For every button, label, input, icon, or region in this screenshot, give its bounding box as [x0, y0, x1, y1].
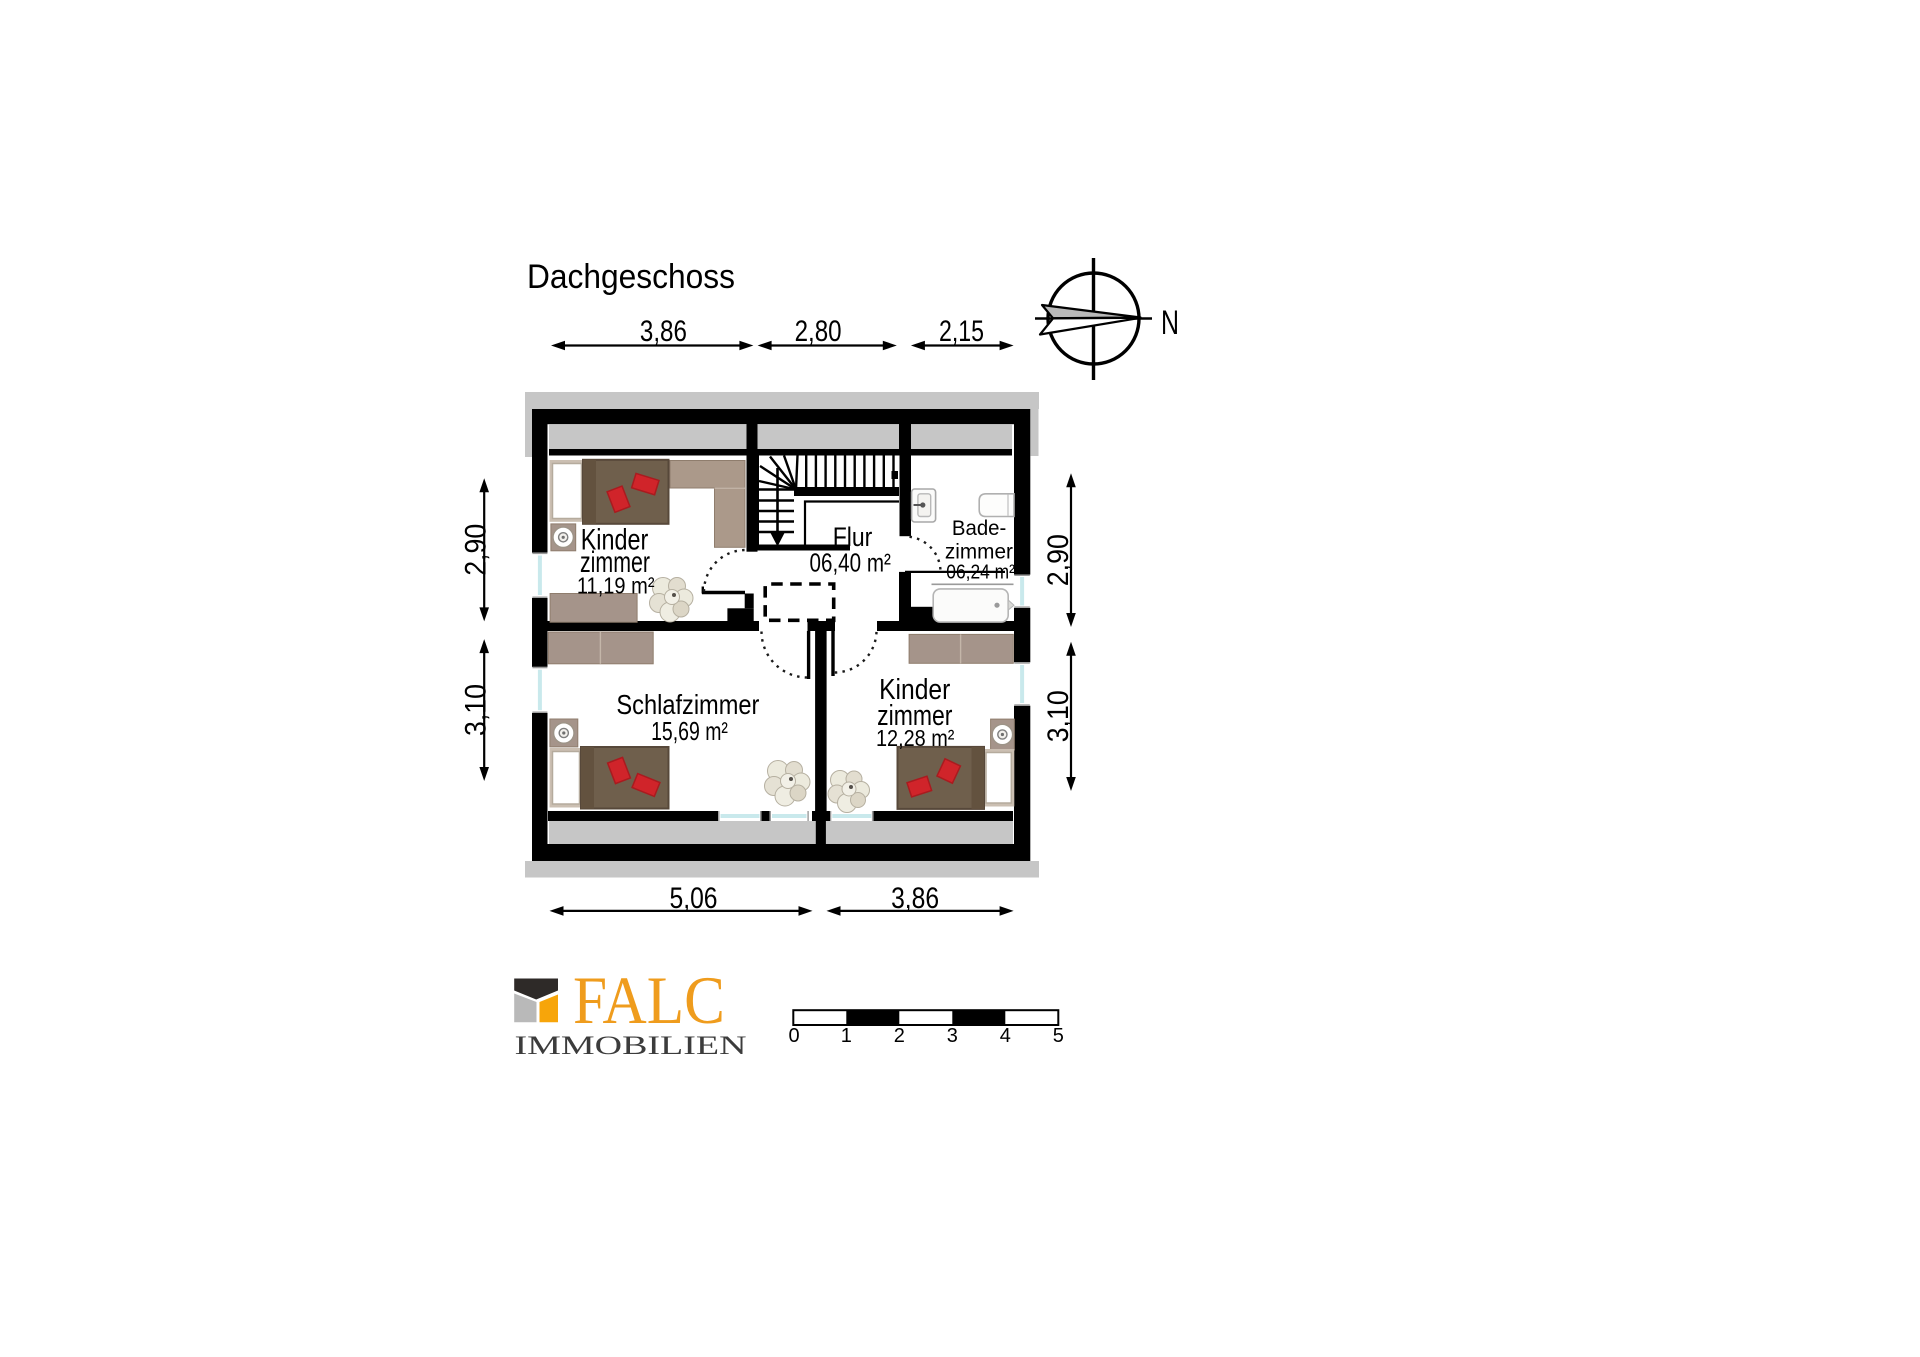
svg-text:3,10: 3,10 — [460, 684, 493, 736]
svg-text:5: 5 — [1053, 1025, 1064, 1047]
svg-text:11,19 m²: 11,19 m² — [577, 573, 655, 599]
svg-text:06,40 m²: 06,40 m² — [810, 548, 892, 578]
svg-text:1: 1 — [841, 1025, 852, 1047]
svg-text:15,69 m²: 15,69 m² — [651, 716, 728, 746]
svg-text:FALC: FALC — [573, 962, 725, 1038]
svg-text:2,90: 2,90 — [1042, 534, 1075, 586]
svg-text:2,90: 2,90 — [460, 524, 493, 576]
svg-text:12,28 m²: 12,28 m² — [876, 725, 955, 751]
svg-text:Dachgeschoss: Dachgeschoss — [527, 258, 735, 296]
svg-text:2,15: 2,15 — [939, 315, 984, 348]
svg-text:3: 3 — [947, 1025, 958, 1047]
svg-text:2,80: 2,80 — [795, 315, 842, 348]
svg-text:3,86: 3,86 — [640, 315, 687, 348]
svg-text:Bade-: Bade- — [952, 517, 1006, 540]
svg-text:3,10: 3,10 — [1042, 690, 1075, 742]
svg-text:5,06: 5,06 — [670, 882, 718, 915]
svg-text:06,24 m²: 06,24 m² — [946, 562, 1015, 584]
svg-text:zimmer: zimmer — [945, 541, 1013, 564]
svg-text:4: 4 — [1000, 1025, 1011, 1047]
svg-text:3,86: 3,86 — [891, 882, 939, 915]
svg-text:N: N — [1161, 304, 1179, 342]
svg-text:IMMOBILIEN: IMMOBILIEN — [515, 1031, 747, 1060]
svg-text:2: 2 — [894, 1025, 905, 1047]
svg-text:0: 0 — [788, 1025, 799, 1047]
